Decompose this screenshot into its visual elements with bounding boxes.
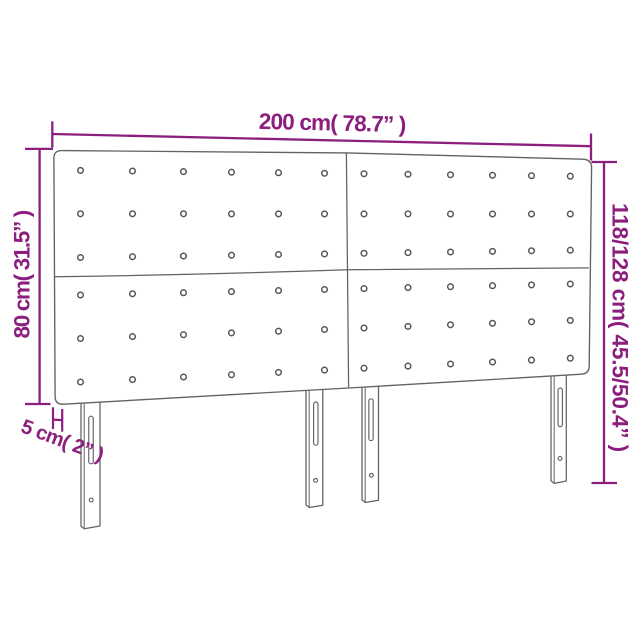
svg-text:118/128 cm( 45.5/50.4” ): 118/128 cm( 45.5/50.4” ) bbox=[607, 203, 632, 452]
svg-text:80 cm( 31.5” ): 80 cm( 31.5” ) bbox=[10, 210, 35, 338]
svg-text:200 cm( 78.7” ): 200 cm( 78.7” ) bbox=[259, 109, 407, 137]
